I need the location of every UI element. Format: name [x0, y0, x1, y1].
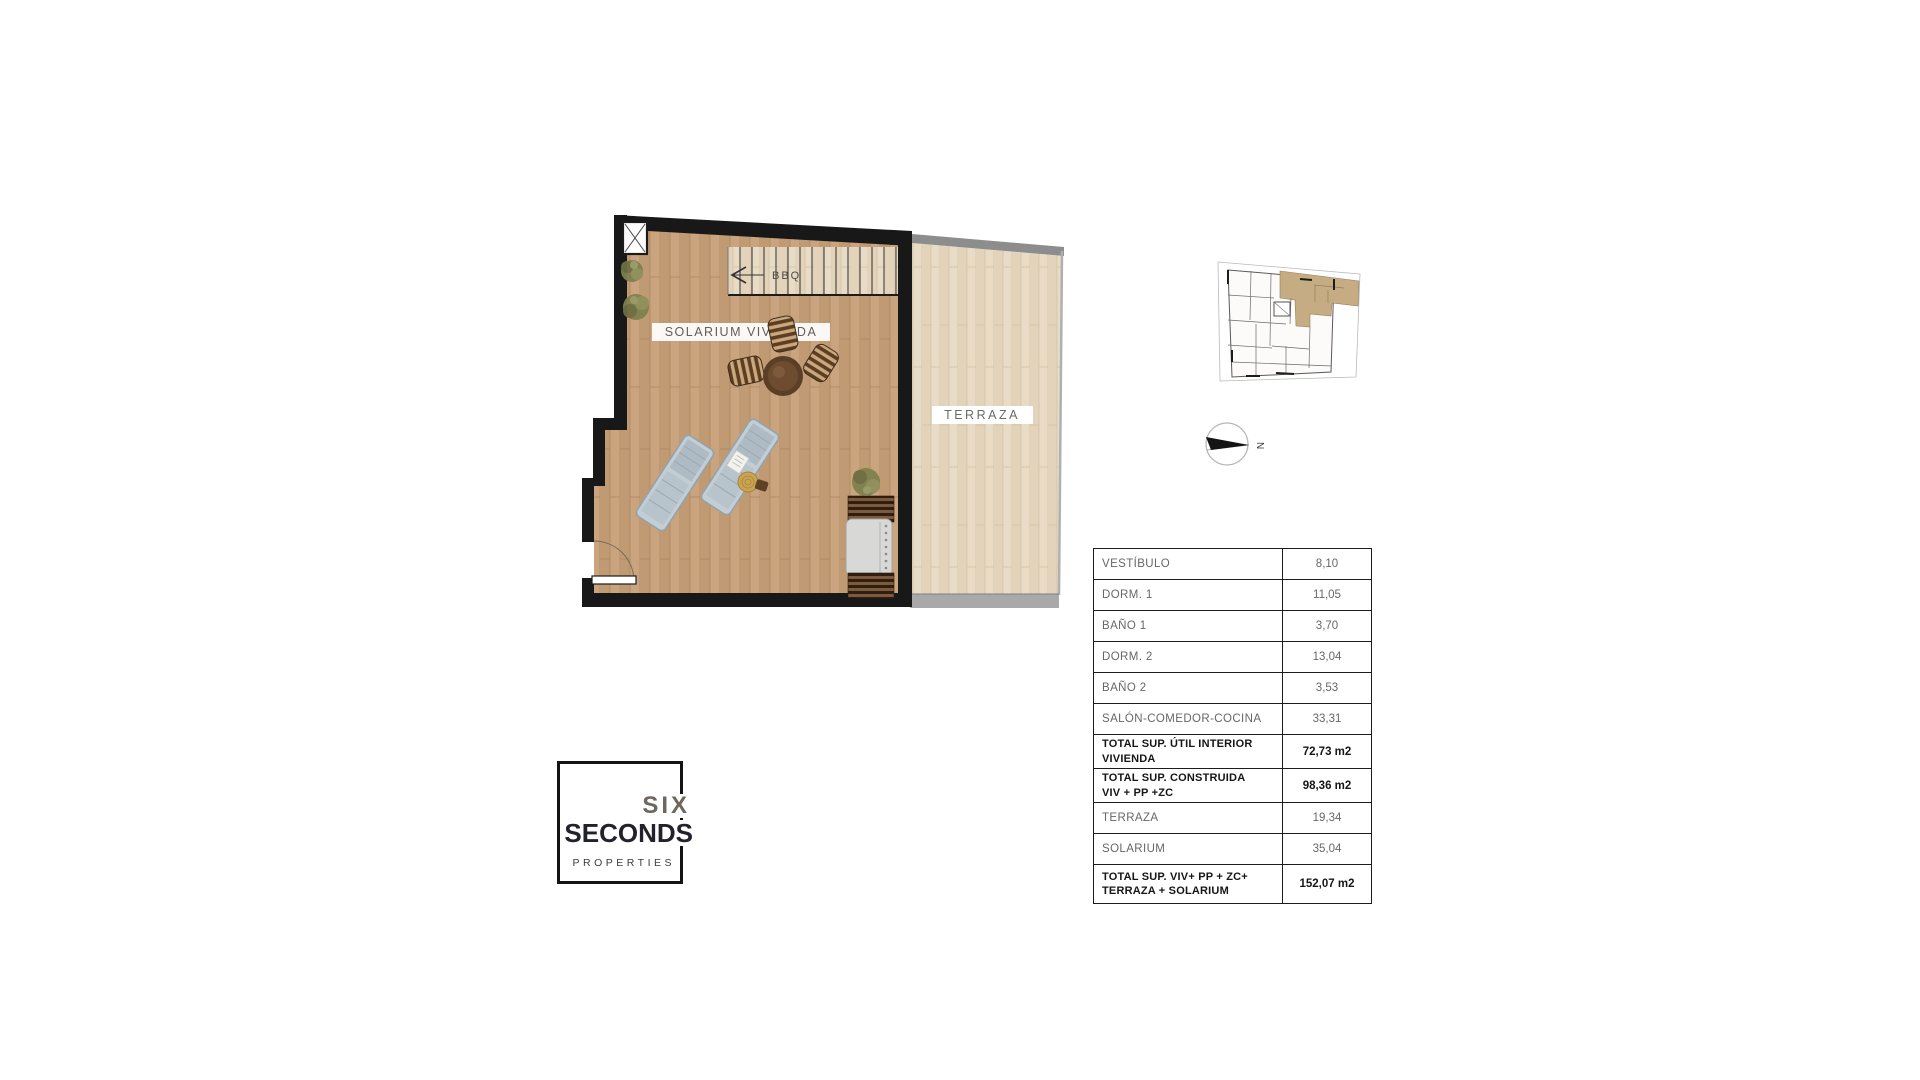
solarium-label: SOLARIUM VIVIENDA: [652, 323, 830, 341]
table-row: TOTAL SUP. ÚTIL INTERIOR VIVIENDA72,73 m…: [1094, 734, 1371, 768]
room-label: DORM. 2: [1094, 642, 1282, 672]
area-value: 33,31: [1282, 704, 1371, 734]
logo-word-properties: PROPERTIES: [570, 858, 679, 869]
plant: [623, 294, 649, 320]
room-label: SOLARIUM: [1094, 834, 1282, 864]
table-row: TOTAL SUP. VIV+ PP + ZC+ TERRAZA + SOLAR…: [1094, 864, 1371, 903]
table-row: BAÑO 23,53: [1094, 672, 1371, 703]
terraza-base-band: [910, 594, 1059, 608]
staircase: BBQ: [728, 247, 898, 295]
room-label: SALÓN-COMEDOR-COCINA: [1094, 704, 1282, 734]
area-value: 8,10: [1282, 549, 1371, 579]
area-value: 11,05: [1282, 580, 1371, 610]
table-row: SOLARIUM35,04: [1094, 833, 1371, 864]
area-value: 3,53: [1282, 673, 1371, 703]
plant: [621, 260, 643, 282]
table-row: TERRAZA19,34: [1094, 802, 1371, 833]
svg-text:TERRAZA: TERRAZA: [944, 408, 1020, 422]
area-value: 19,34: [1282, 803, 1371, 833]
bbq-grill: [846, 496, 894, 598]
floor-plan-drawing: BBQ: [580, 195, 1080, 615]
room-label: BAÑO 2: [1094, 673, 1282, 703]
table-row: DORM. 111,05: [1094, 579, 1371, 610]
room-label: TOTAL SUP. VIV+ PP + ZC+ TERRAZA + SOLAR…: [1094, 865, 1282, 903]
round-table: [763, 356, 803, 396]
terraza-label: TERRAZA: [932, 406, 1033, 424]
brand-logo: SIX SECONDS PROPERTIES: [557, 761, 683, 884]
stairs-label: BBQ: [772, 270, 801, 282]
area-value: 3,70: [1282, 611, 1371, 641]
page: BBQ: [0, 0, 1920, 1080]
table-row: SALÓN-COMEDOR-COCINA33,31: [1094, 703, 1371, 734]
plant: [852, 468, 880, 496]
room-label: TOTAL SUP. ÚTIL INTERIOR VIVIENDA: [1094, 735, 1282, 768]
north-arrow-icon: [1206, 437, 1249, 450]
room-label: VESTÍBULO: [1094, 549, 1282, 579]
shaft-x-icon: [623, 222, 647, 254]
logo-word-seconds: SECONDS: [562, 820, 695, 846]
room-label: TERRAZA: [1094, 803, 1282, 833]
area-value: 98,36 m2: [1282, 769, 1371, 802]
area-value: 35,04: [1282, 834, 1371, 864]
table-row: VESTÍBULO8,10: [1094, 549, 1371, 579]
table-row: BAÑO 13,70: [1094, 610, 1371, 641]
room-label: DORM. 1: [1094, 580, 1282, 610]
area-value: 152,07 m2: [1282, 865, 1371, 903]
table-row: DORM. 213,04: [1094, 641, 1371, 672]
table-row: TOTAL SUP. CONSTRUIDA VIV + PP +ZC98,36 …: [1094, 768, 1371, 802]
north-label: N: [1254, 442, 1265, 449]
logo-word-six: SIX: [639, 794, 693, 818]
area-value: 72,73 m2: [1282, 735, 1371, 768]
north-compass: N: [1198, 416, 1270, 478]
area-value: 13,04: [1282, 642, 1371, 672]
key-plan: [1216, 250, 1366, 385]
room-label: TOTAL SUP. CONSTRUIDA VIV + PP +ZC: [1094, 769, 1282, 802]
area-table: VESTÍBULO8,10DORM. 111,05BAÑO 13,70DORM.…: [1093, 548, 1372, 904]
room-label: BAÑO 1: [1094, 611, 1282, 641]
